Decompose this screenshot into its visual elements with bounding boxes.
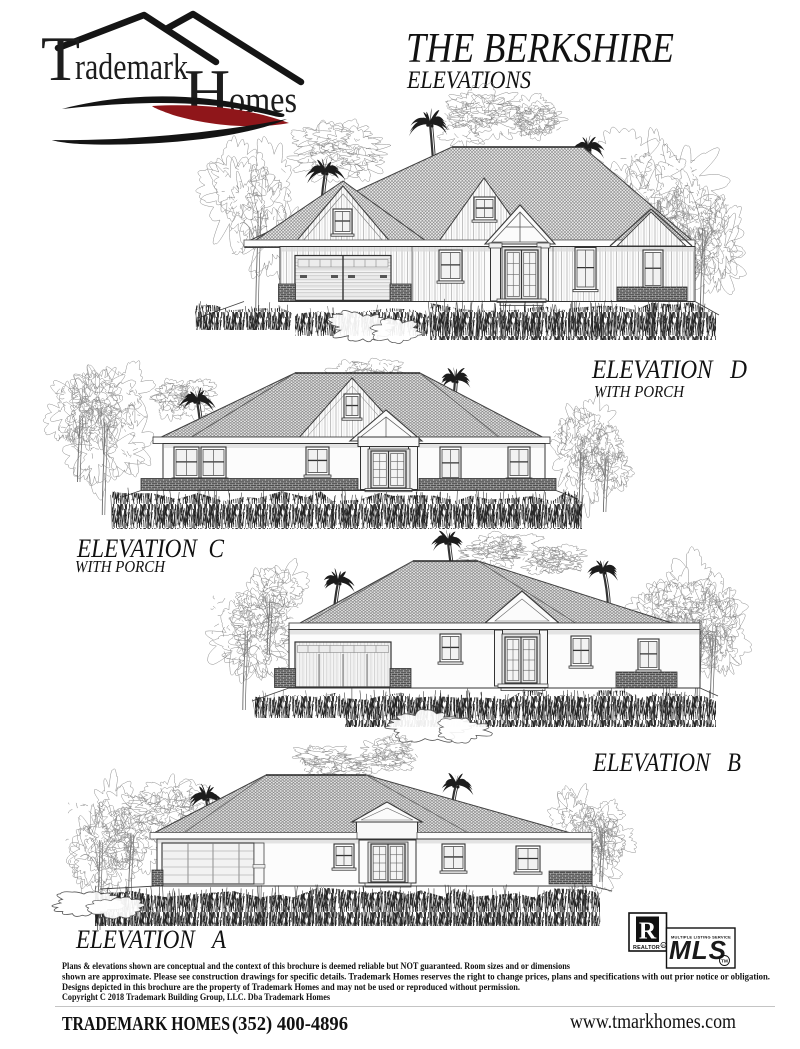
svg-text:ELEVATION D: ELEVATION D: [591, 355, 747, 384]
svg-text:Plans & elevations shown are c: Plans & elevations shown are conceptual …: [62, 961, 570, 971]
svg-text:shown are approximate. Please: shown are approximate. Please see constr…: [62, 972, 770, 982]
svg-text:ELEVATION A: ELEVATION A: [75, 925, 226, 954]
svg-text:ELEVATION B: ELEVATION B: [592, 748, 741, 777]
svg-text:Copyright C 2018 Trademark Bui: Copyright C 2018 Trademark Building Grou…: [62, 992, 330, 1002]
svg-text:R: R: [639, 919, 657, 945]
svg-text:THE BERKSHIRE: THE BERKSHIRE: [406, 26, 674, 72]
svg-text:rademark: rademark: [75, 47, 188, 88]
svg-text:www.tmarkhomes.com: www.tmarkhomes.com: [570, 1009, 736, 1033]
svg-text:R: R: [662, 943, 665, 948]
svg-text:WITH PORCH: WITH PORCH: [594, 382, 686, 401]
svg-text:(352) 400-4896: (352) 400-4896: [232, 1014, 348, 1035]
svg-text:TM: TM: [721, 959, 728, 964]
svg-text:WITH PORCH: WITH PORCH: [75, 557, 167, 576]
svg-text:TRADEMARK HOMES: TRADEMARK HOMES: [62, 1014, 230, 1035]
svg-text:REALTOR: REALTOR: [633, 945, 660, 951]
svg-text:Designs depicted in this broch: Designs depicted in this brochure are th…: [62, 982, 520, 992]
svg-text:MLS: MLS: [669, 935, 727, 965]
